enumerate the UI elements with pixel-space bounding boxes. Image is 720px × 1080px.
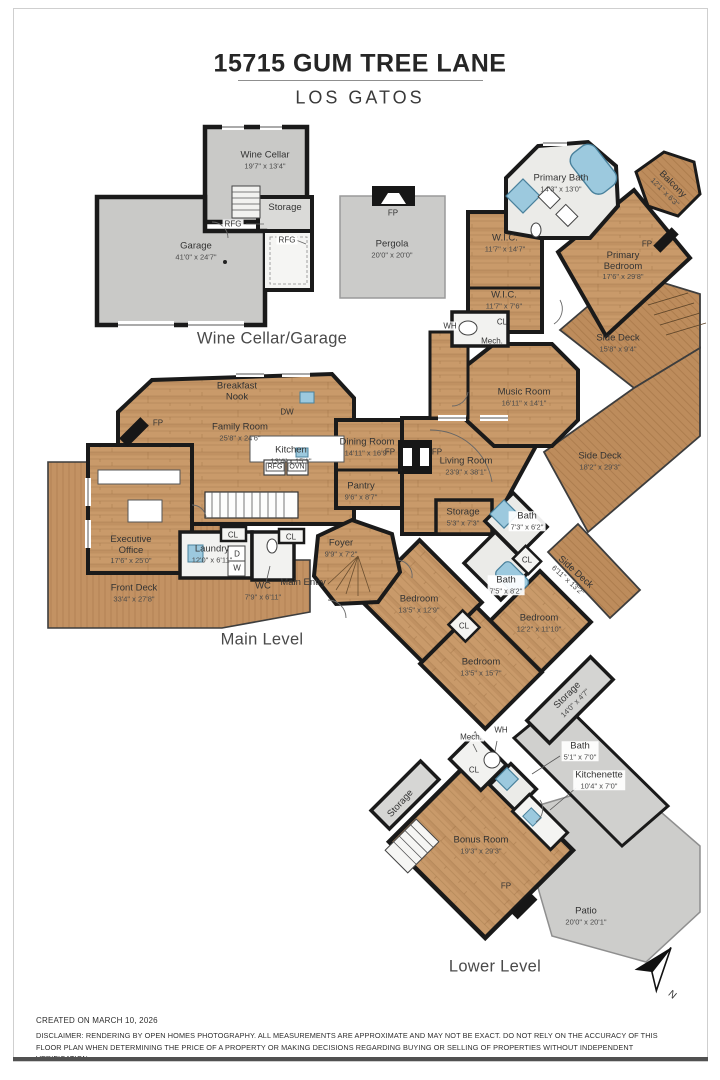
room-label-kitchenette: Kitchenette10'4" x 7'0" bbox=[573, 770, 625, 790]
room-label-front-deck: Front Deck33'4" x 27'8" bbox=[111, 583, 157, 603]
fp-label: FP bbox=[388, 209, 398, 218]
fp-label: FP bbox=[642, 240, 652, 249]
floor-plan-page: 15715 GUM TREE LANE LOS GATOS bbox=[0, 0, 720, 1080]
room-label-executive-office: Executive Office17'6" x 25'0" bbox=[103, 535, 159, 565]
room-label-main-entry: Main Entry bbox=[275, 578, 331, 589]
washer-label: W bbox=[233, 564, 241, 573]
room-label-garage-storage: Storage bbox=[268, 203, 301, 214]
room-label-living-room: Living Room23'9" x 38'1" bbox=[440, 456, 493, 476]
room-label-primary-bedroom: Primary Bedroom17'6" x 29'8" bbox=[595, 251, 651, 281]
mech-label: Mech. bbox=[481, 337, 503, 346]
wh-label: WH bbox=[441, 322, 458, 331]
room-label-side-deck-upper: Side Deck15'8" x 9'4" bbox=[596, 333, 639, 353]
wh-label: WH bbox=[492, 726, 509, 735]
room-label-pantry: Pantry9'6" x 8'7" bbox=[345, 481, 378, 501]
room-label-pergola: Pergola20'0" x 20'0" bbox=[371, 239, 412, 259]
lower-level-plan bbox=[371, 657, 700, 991]
section-label-lower-level: Lower Level bbox=[449, 958, 541, 977]
room-label-music-room: Music Room16'11" x 14'1" bbox=[498, 387, 551, 407]
cl-label: CL bbox=[459, 622, 469, 631]
room-label-side-deck-right: Side Deck18'2" x 29'3" bbox=[578, 451, 621, 471]
room-label-wic2: W.I.C.11'7" x 7'6" bbox=[486, 290, 522, 310]
room-label-bedroom1: Bedroom13'5" x 12'9" bbox=[398, 594, 439, 614]
room-label-wine-cellar: Wine Cellar19'7" x 13'4" bbox=[240, 150, 289, 170]
fp-label: FP bbox=[501, 882, 511, 891]
fp-label: FP bbox=[385, 448, 395, 457]
room-label-primary-bath: Primary Bath14'3" x 13'0" bbox=[533, 173, 589, 193]
section-label-garage-level: Wine Cellar/Garage bbox=[197, 330, 347, 349]
rfg-label: RFG bbox=[223, 220, 244, 229]
mech-label: Mech. bbox=[458, 733, 484, 742]
fp-label: FP bbox=[153, 419, 163, 428]
cl-label: CL bbox=[497, 318, 507, 327]
page-bottom-rule bbox=[13, 1057, 708, 1061]
room-label-bath-lower-level: Bath5'1" x 7'0" bbox=[562, 741, 599, 761]
room-label-laundry: Laundry12'0" x 6'11" bbox=[192, 544, 233, 564]
room-label-patio: Patio20'0" x 20'1" bbox=[565, 906, 606, 926]
room-label-bath-upper: Bath7'3" x 6'2" bbox=[509, 511, 546, 531]
room-label-foyer: Foyer9'9" x 7'2" bbox=[325, 538, 358, 558]
room-label-storage-main: Storage5'3" x 7'3" bbox=[446, 507, 479, 527]
section-label-main-level: Main Level bbox=[221, 631, 304, 650]
footer-created-date: CREATED ON MARCH 10, 2026 bbox=[36, 1016, 158, 1025]
rfg-label: RFG bbox=[277, 236, 298, 245]
room-label-wic1: W.I.C.11'7" x 14'7" bbox=[485, 233, 526, 253]
dryer-label: D bbox=[234, 550, 240, 559]
room-label-family-room: Family Room25'8" x 24'6" bbox=[212, 422, 268, 442]
cl-label: CL bbox=[286, 533, 296, 542]
room-label-bedroom2: Bedroom12'2" x 11'10" bbox=[517, 613, 562, 633]
room-label-bedroom3: Bedroom13'5" x 15'7" bbox=[460, 657, 501, 677]
room-label-bonus-room: Bonus Room19'3" x 29'3" bbox=[453, 835, 509, 855]
ovn-label: OVN bbox=[287, 463, 306, 472]
dw-label: DW bbox=[280, 408, 293, 417]
room-label-garage: Garage41'0" x 24'7" bbox=[175, 241, 216, 261]
room-label-bath-lower: Bath7'5" x 8'2" bbox=[488, 575, 525, 595]
rfg-label: RFG bbox=[266, 463, 285, 472]
room-label-breakfast-nook: Breakfast Nook bbox=[209, 382, 265, 403]
cl-label: CL bbox=[522, 556, 532, 565]
cl-label: CL bbox=[469, 766, 479, 775]
cl-label: CL bbox=[228, 531, 238, 540]
